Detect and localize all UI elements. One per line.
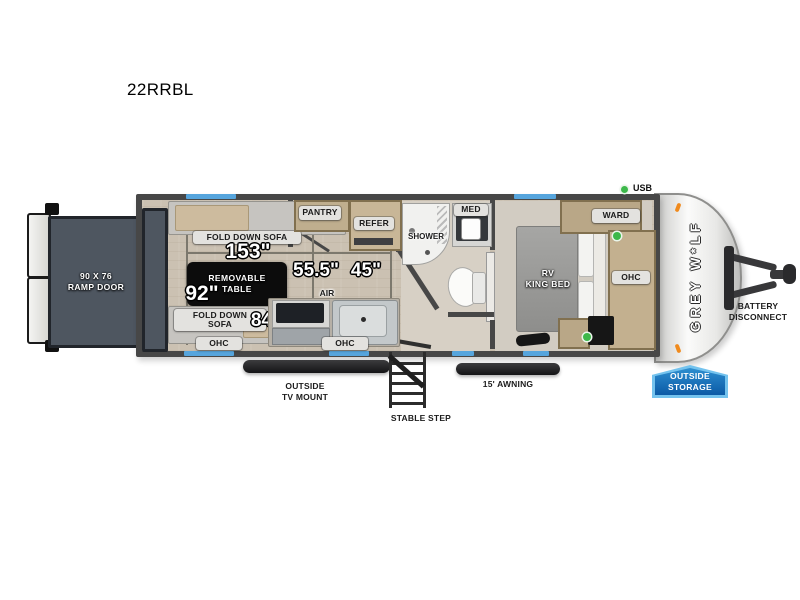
- stove: [272, 300, 330, 328]
- ramp-hinge-top: [45, 203, 59, 215]
- bedroom-ohc-cabinet: [608, 230, 656, 350]
- bath-sink: [461, 218, 481, 240]
- stable-step-label: STABLE STEP: [374, 413, 468, 424]
- step-rung: [392, 402, 423, 405]
- outside-tv-mount-label: OUTSIDE TV MOUNT: [255, 381, 355, 402]
- pillow-top: [578, 231, 594, 277]
- ohc-kitchen-label: OHC: [322, 337, 368, 350]
- dimension-153: 153": [204, 241, 292, 262]
- outside-tv-mount-bar: [243, 360, 390, 373]
- awning-bar: [456, 363, 560, 375]
- step-rail-right: [423, 352, 426, 408]
- ohc-bedroom-label: OHC: [612, 271, 650, 284]
- usb-legend-dot: [621, 186, 628, 193]
- sofa-bottom-label-line2: SOFA: [208, 320, 232, 329]
- tv-mount-line1: OUTSIDE: [255, 381, 355, 392]
- window-top-bedroom: [514, 194, 556, 199]
- battery-label-line1: BATTERY: [714, 301, 800, 312]
- toilet-tank: [472, 272, 486, 304]
- ohc-garage-label: OHC: [196, 337, 242, 350]
- ramp-door-label: 90 X 76 RAMP DOOR: [68, 271, 124, 292]
- outside-storage-badge: OUTSIDE STORAGE: [652, 365, 728, 398]
- usb-port-dot-top: [613, 232, 621, 240]
- ward-label: WARD: [592, 209, 640, 223]
- faucet: [361, 317, 366, 322]
- cooktop: [276, 303, 324, 323]
- usb-legend-label: USB: [633, 183, 667, 193]
- window-bottom-hall: [452, 351, 474, 356]
- window-bottom-bedroom: [523, 351, 549, 356]
- shower-label: SHOWER: [403, 232, 449, 242]
- dimension-92: 92": [176, 283, 228, 304]
- bed-label: RV KING BED: [518, 268, 578, 289]
- pantry-label: PANTRY: [299, 206, 341, 220]
- grey-wolf-logo: GREY W*LF: [688, 196, 708, 356]
- ramp-door-size: 90 X 76: [68, 271, 124, 282]
- floorplan-page: 22RRBL 90 X 76 RAMP DOOR GREY W*LF BATTE…: [0, 0, 800, 600]
- med-cabinet-label: MED: [454, 204, 488, 216]
- ramp-door: 90 X 76 RAMP DOOR: [48, 216, 144, 348]
- step-rung: [392, 392, 423, 395]
- refrigerator-front: [354, 238, 393, 245]
- window-bottom-garage: [184, 351, 234, 356]
- wall-bath-bedroom-bottom: [490, 320, 495, 349]
- usb-port-dot-bottom: [583, 333, 591, 341]
- dimension-45: 45": [341, 261, 391, 280]
- awning-label: 15' AWNING: [462, 379, 554, 390]
- bed-label-line1: RV: [518, 268, 578, 279]
- model-title: 22RRBL: [127, 80, 194, 100]
- battery-label-line2: DISCONNECT: [714, 312, 800, 323]
- refer-label: REFER: [354, 217, 394, 230]
- shower-drain: [425, 250, 430, 255]
- window-top-garage: [186, 194, 236, 199]
- storage-line1: OUTSIDE: [670, 371, 710, 381]
- storage-line2: STORAGE: [668, 382, 712, 392]
- dimension-55-5: 55.5": [284, 261, 348, 280]
- air-fryer-line1: AIR: [303, 288, 351, 298]
- hitch-coupler-knob: [783, 264, 796, 284]
- window-bottom-kitchen: [329, 351, 369, 356]
- wall-toilet-alcove: [448, 312, 494, 317]
- outside-storage-badge-inner: OUTSIDE STORAGE: [655, 368, 725, 395]
- battery-disconnect-label: BATTERY DISCONNECT: [714, 301, 800, 322]
- bed-label-line2: KING BED: [518, 279, 578, 290]
- ramp-door-open-panel: [142, 208, 168, 352]
- tv-mount-line2: TV MOUNT: [255, 392, 355, 403]
- sofa-cushion: [175, 205, 249, 231]
- bedroom-tv: [588, 316, 614, 345]
- ramp-door-name: RAMP DOOR: [68, 282, 124, 293]
